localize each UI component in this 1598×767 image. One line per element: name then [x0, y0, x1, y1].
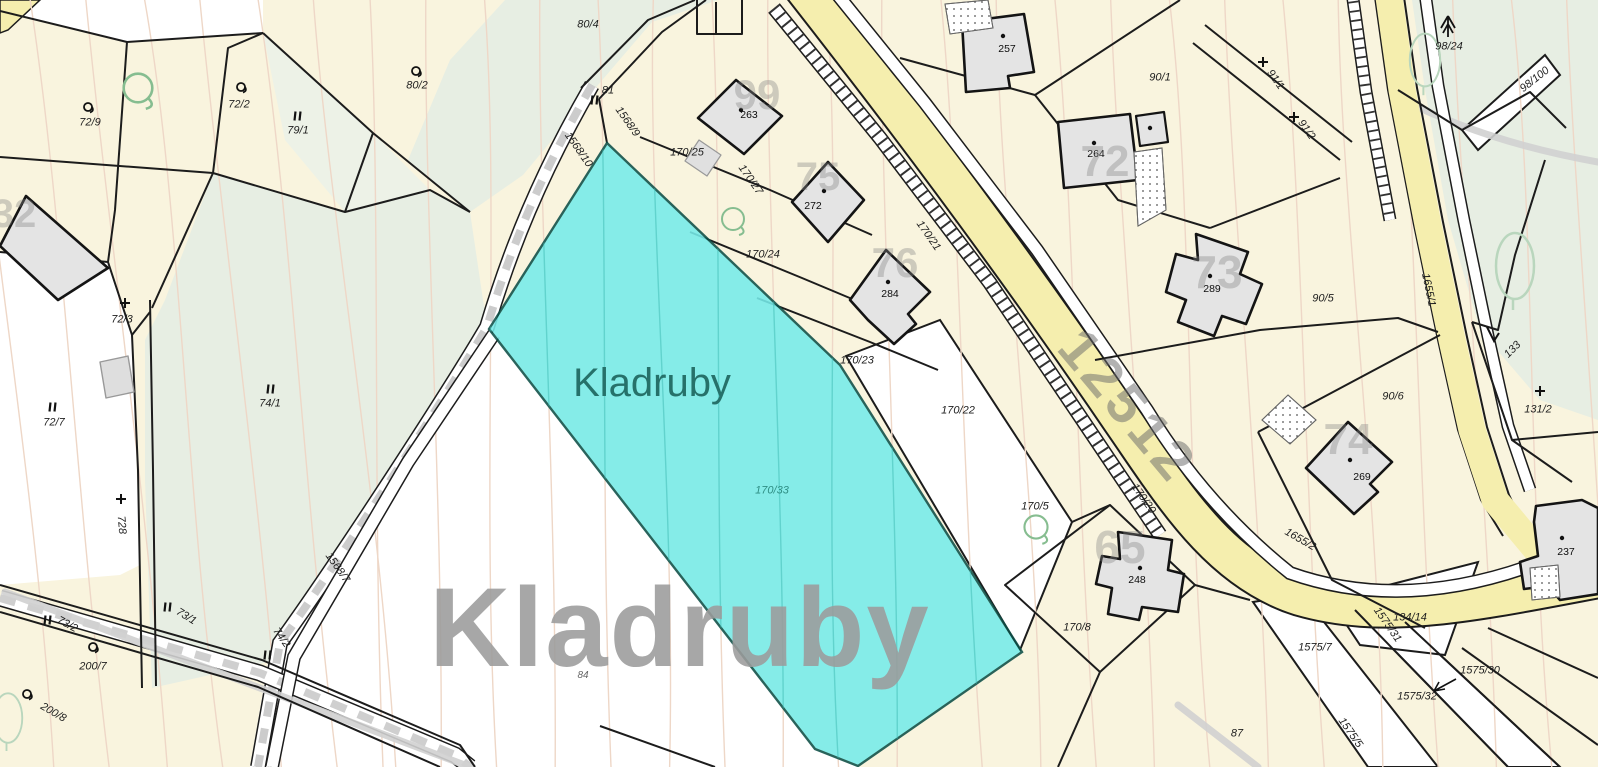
bdot-symbol [1208, 274, 1212, 278]
bdot-symbol [739, 108, 743, 112]
cadastral-map[interactable]: 72/972/279/180/280/48190/198/24170/25170… [0, 0, 1598, 767]
bdot-symbol [1148, 126, 1152, 130]
building-264-annex [1136, 112, 1168, 146]
bdot-symbol [1348, 458, 1352, 462]
shed [100, 356, 134, 398]
building-264 [1058, 114, 1138, 188]
bdot-symbol [822, 189, 826, 193]
bdot-symbol [1138, 566, 1142, 570]
map-geometry [0, 0, 1598, 767]
bdot-symbol [1001, 34, 1005, 38]
bdot-symbol [1092, 141, 1096, 145]
bdot-symbol [886, 280, 890, 284]
bdot-symbol [1560, 536, 1564, 540]
